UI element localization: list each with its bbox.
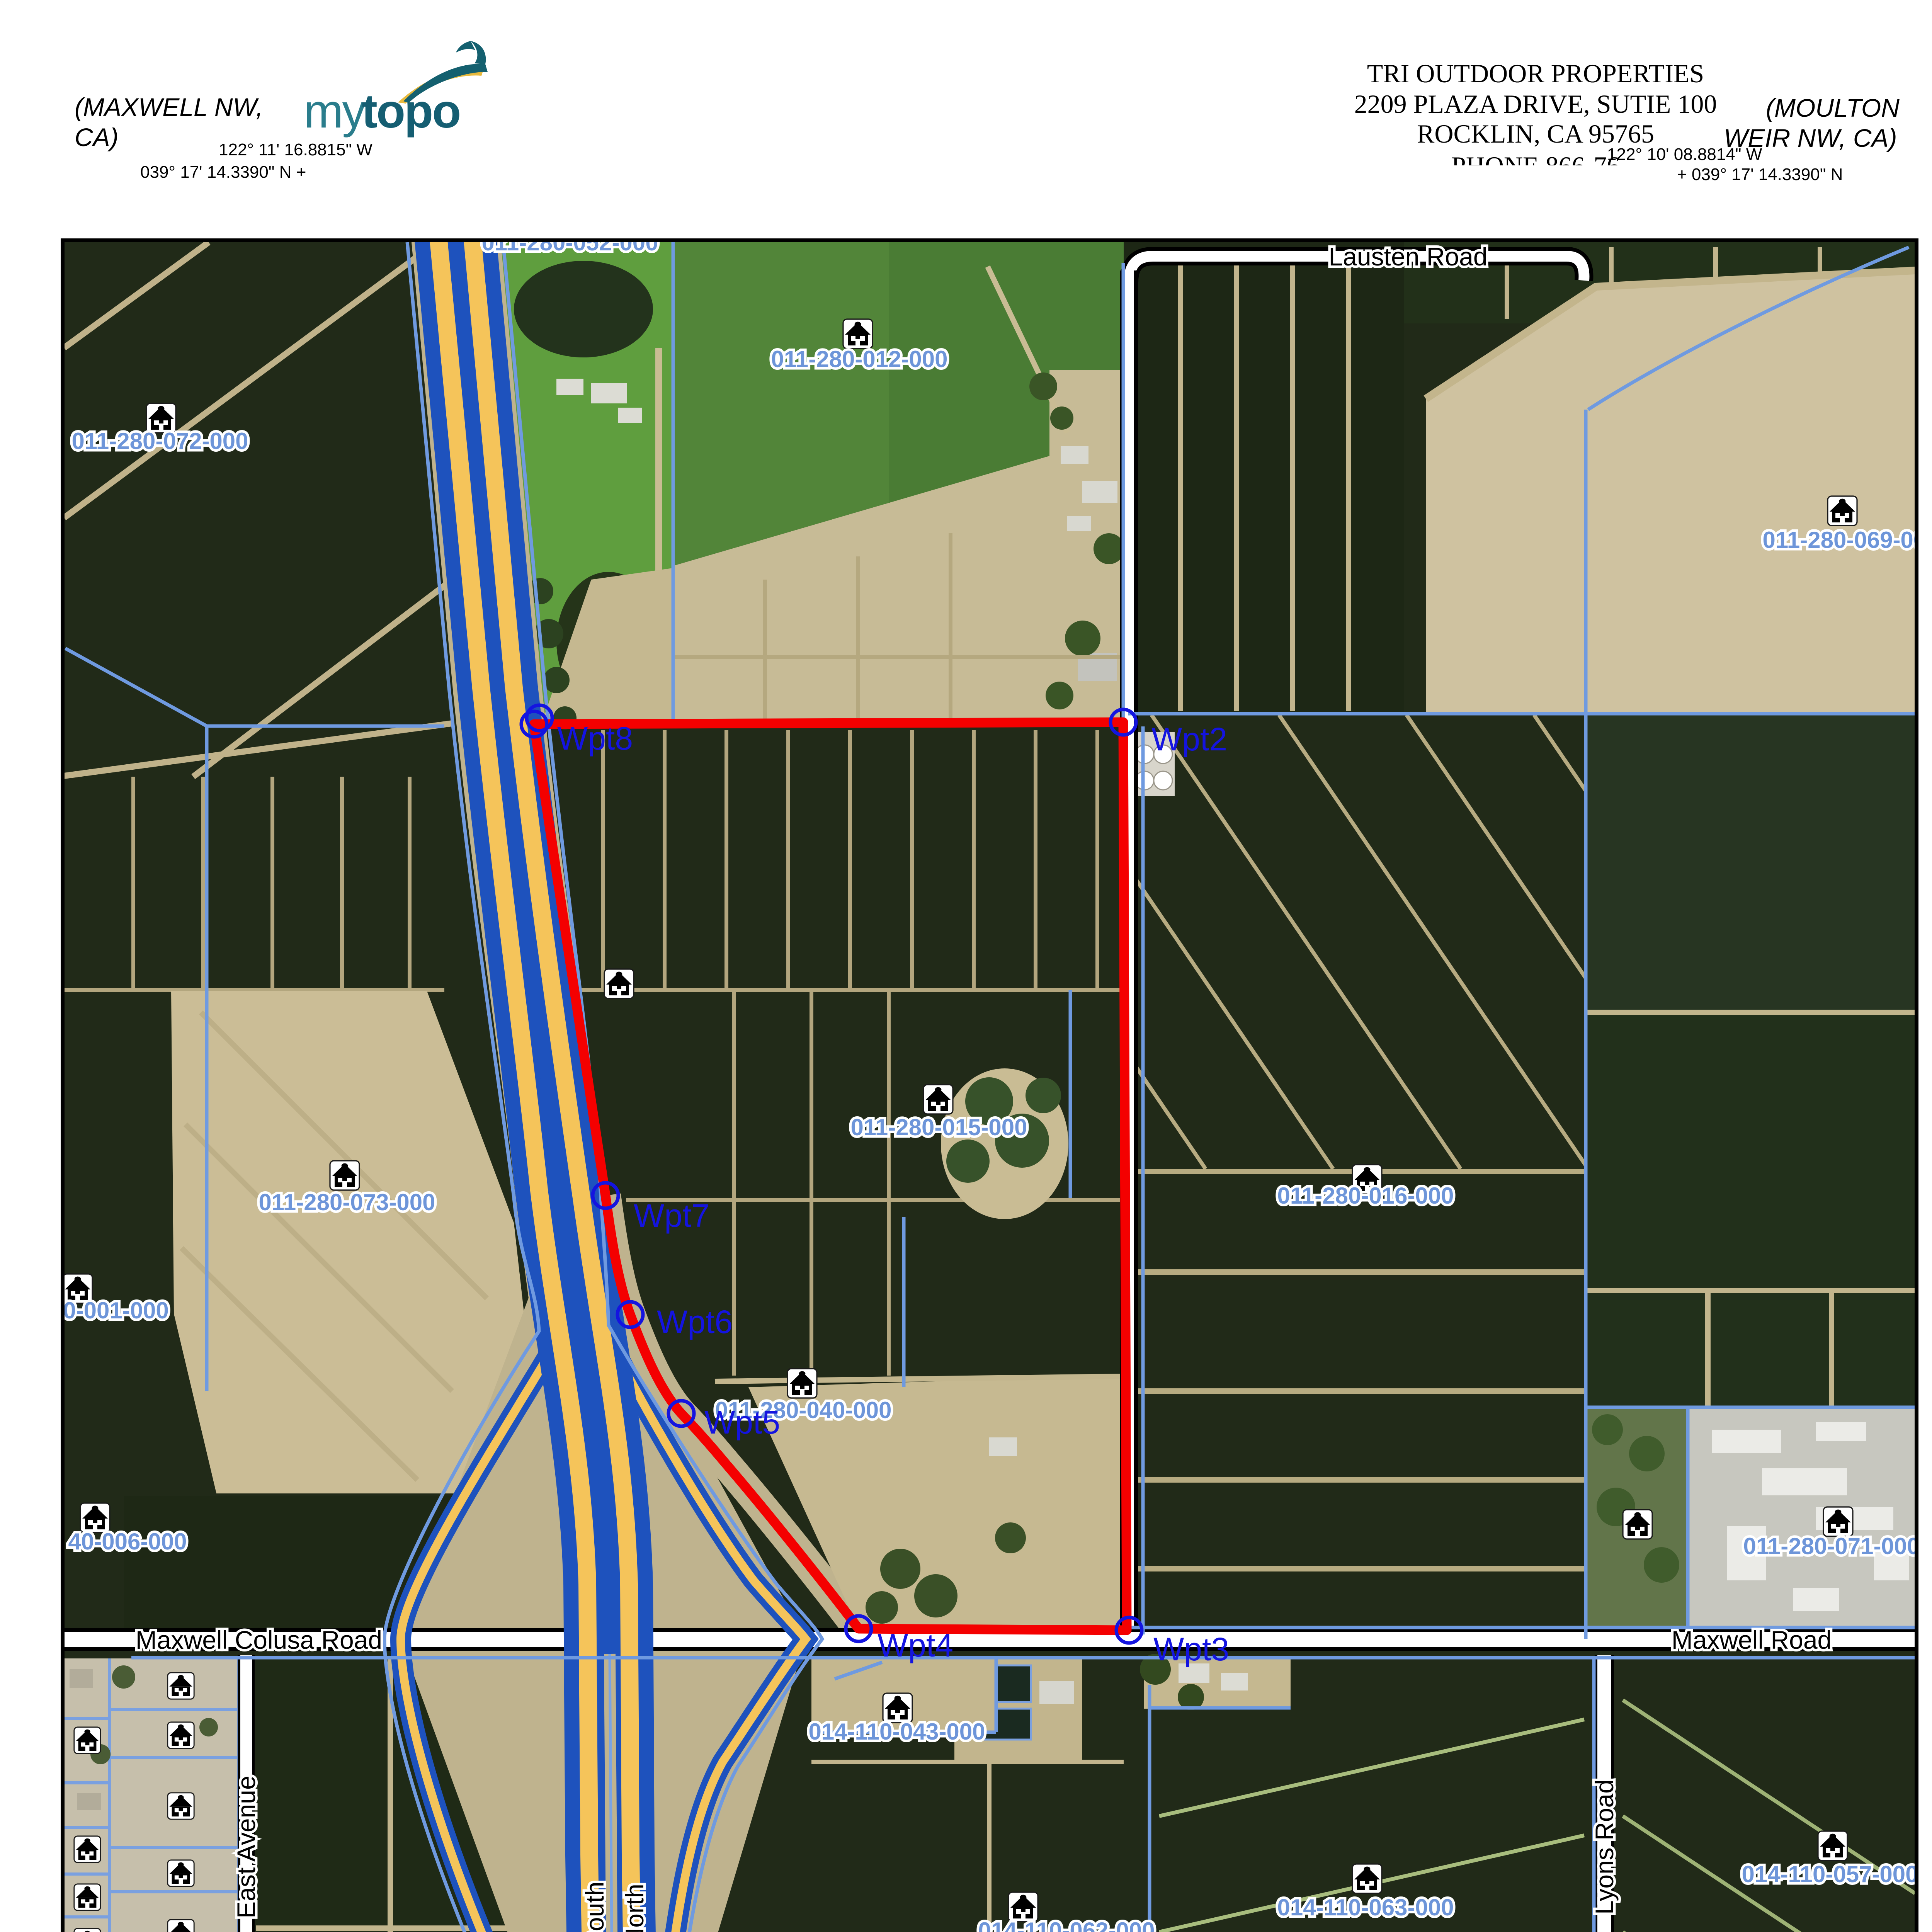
svg-text:014-110-057-000: 014-110-057-000	[1742, 1861, 1918, 1887]
svg-text:Wpt2: Wpt2	[1151, 721, 1227, 757]
svg-text:011-280-072-000: 011-280-072-000	[71, 428, 248, 454]
svg-text:0-001-000: 0-001-000	[63, 1298, 169, 1323]
svg-text:Interstate 5 North: Interstate 5 North	[620, 1884, 649, 1932]
svg-text:Wpt8: Wpt8	[557, 720, 633, 757]
svg-text:CA): CA)	[75, 123, 119, 151]
svg-text:014-110-043-000: 014-110-043-000	[808, 1719, 985, 1745]
svg-text:+ 039° 17' 14.3390" N: + 039° 17' 14.3390" N	[1677, 165, 1843, 184]
svg-text:Maxwell Colusa Road: Maxwell Colusa Road	[136, 1626, 382, 1654]
svg-text:014-110-063-000: 014-110-063-000	[1277, 1895, 1454, 1920]
svg-text:Interstate 5 South: Interstate 5 South	[580, 1881, 609, 1932]
svg-text:011-280-071-000: 011-280-071-000	[1743, 1533, 1920, 1559]
svg-text:(MOULTON: (MOULTON	[1766, 94, 1900, 122]
svg-text:my: my	[304, 85, 366, 138]
svg-text:TRI OUTDOOR PROPERTIES: TRI OUTDOOR PROPERTIES	[1367, 59, 1704, 88]
svg-text:Wpt4: Wpt4	[878, 1627, 953, 1663]
svg-text:011-280-069-000: 011-280-069-000	[1762, 527, 1932, 553]
svg-text:Wpt3: Wpt3	[1153, 1631, 1229, 1667]
svg-text:ROCKLIN, CA 95765: ROCKLIN, CA 95765	[1417, 119, 1654, 148]
svg-text:Wpt7: Wpt7	[634, 1197, 709, 1234]
svg-text:Lausten Road: Lausten Road	[1329, 242, 1488, 271]
svg-text:011-280-015-000: 011-280-015-000	[850, 1114, 1027, 1140]
svg-text:Wpt5: Wpt5	[704, 1404, 780, 1440]
svg-text:011-280-073-000: 011-280-073-000	[259, 1189, 435, 1215]
svg-text:011-280-016-000: 011-280-016-000	[1277, 1183, 1454, 1209]
svg-text:(MAXWELL NW,: (MAXWELL NW,	[75, 93, 263, 121]
svg-text:011-280-012-000: 011-280-012-000	[771, 346, 947, 372]
svg-text:40-006-000: 40-006-000	[68, 1529, 187, 1554]
svg-text:122° 11' 16.8815" W: 122° 11' 16.8815" W	[219, 140, 372, 159]
svg-text:2209 PLAZA DRIVE, SUTIE 100: 2209 PLAZA DRIVE, SUTIE 100	[1354, 89, 1717, 119]
svg-text:Wpt6: Wpt6	[657, 1304, 733, 1340]
svg-text:014-110-062-000: 014-110-062-000	[978, 1918, 1155, 1932]
svg-text:East Avenue: East Avenue	[232, 1776, 260, 1918]
svg-text:Lyons Road: Lyons Road	[1590, 1779, 1619, 1915]
svg-text:Maxwell Road: Maxwell Road	[1672, 1626, 1832, 1654]
svg-text:122° 10' 08.8814" W: 122° 10' 08.8814" W	[1607, 145, 1762, 164]
svg-text:039° 17' 14.3390" N +: 039° 17' 14.3390" N +	[140, 163, 306, 182]
